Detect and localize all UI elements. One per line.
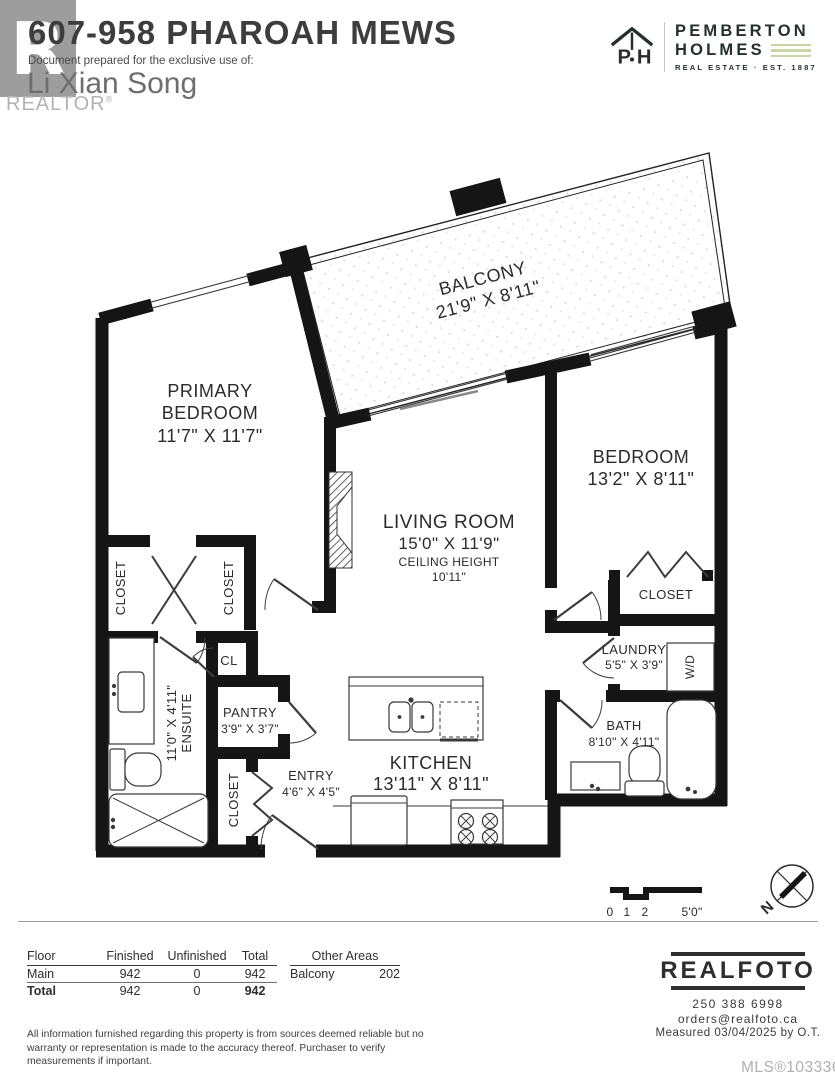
mls-number: MLS®1033367 bbox=[741, 1059, 835, 1077]
col-floor: Floor bbox=[27, 949, 99, 963]
svg-text:LAUNDRY: LAUNDRY bbox=[602, 642, 667, 657]
room-label-ensuite: 11'0" X 4'11" ENSUITE bbox=[164, 685, 194, 762]
floor-plan-page: R 607-958 PHAROAH MEWS Document prepared… bbox=[0, 0, 835, 1080]
room-label-living-room: LIVING ROOM 15'0" X 11'9" CEILING HEIGHT… bbox=[383, 512, 515, 584]
svg-text:PANTRY: PANTRY bbox=[223, 705, 277, 720]
brand-name-line2: HOLMES bbox=[675, 41, 765, 60]
other-areas-header: Other Areas bbox=[290, 948, 400, 966]
compass-icon: N bbox=[758, 865, 813, 918]
wd-label: W/D bbox=[683, 655, 697, 679]
room-label-pantry: PANTRY 3'9" X 3'7" bbox=[221, 705, 279, 736]
svg-text:15'0" X 11'9": 15'0" X 11'9" bbox=[398, 534, 499, 553]
col-total: Total bbox=[233, 949, 277, 963]
realtor-wordmark: REALTOR® bbox=[6, 93, 113, 116]
svg-text:PRIMARY: PRIMARY bbox=[167, 381, 252, 401]
svg-text:5'5" X 3'9": 5'5" X 3'9" bbox=[605, 658, 663, 672]
other-areas-table: Other Areas Balcony 202 bbox=[290, 948, 400, 982]
svg-text:H: H bbox=[637, 46, 652, 68]
other-areas-row: Balcony 202 bbox=[290, 966, 400, 983]
svg-text:P: P bbox=[618, 46, 632, 68]
svg-text:ENTRY: ENTRY bbox=[288, 768, 334, 783]
brand-accent-lines bbox=[771, 44, 811, 58]
page-title: 607-958 PHAROAH MEWS bbox=[28, 14, 457, 52]
col-finished: Finished bbox=[99, 949, 161, 963]
svg-text:ENSUITE: ENSUITE bbox=[179, 693, 194, 752]
tagline-dot: • bbox=[754, 63, 759, 72]
room-label-kitchen: KITCHEN 13'11" X 8'11" bbox=[373, 753, 489, 794]
table-row-main: Main 942 0 942 bbox=[27, 966, 277, 984]
room-label-entry: ENTRY 4'6" X 4'5" bbox=[282, 768, 340, 799]
north-label: N bbox=[758, 898, 777, 918]
svg-text:0: 0 bbox=[607, 905, 614, 919]
svg-text:8'10" X 4'11": 8'10" X 4'11" bbox=[589, 735, 660, 749]
room-label-primary-bedroom: PRIMARY BEDROOM 11'7" X 11'7" bbox=[157, 381, 263, 446]
closet-label-entry: CLOSET bbox=[226, 773, 241, 827]
prepared-for-label: Document prepared for the exclusive use … bbox=[28, 55, 254, 67]
realfoto-email: orders@realfoto.ca bbox=[655, 1012, 821, 1026]
disclaimer-text: All information furnished regarding this… bbox=[27, 1028, 435, 1069]
svg-text:4'6" X 4'5": 4'6" X 4'5" bbox=[282, 785, 340, 799]
brand-tagline: REAL ESTATE • EST. 1887 bbox=[675, 63, 817, 72]
realfoto-block: REALFOTO 250 388 6998 orders@realfoto.ca… bbox=[655, 952, 821, 1039]
svg-text:5'0": 5'0" bbox=[681, 905, 702, 919]
fireplace-icon bbox=[329, 472, 352, 568]
scale-bar: 0 1 2 5'0" bbox=[607, 890, 703, 919]
svg-text:3'9" X 3'7": 3'9" X 3'7" bbox=[221, 722, 279, 736]
svg-text:LIVING ROOM: LIVING ROOM bbox=[383, 512, 515, 533]
svg-text:1: 1 bbox=[624, 905, 631, 919]
svg-text:11'0" X 4'11": 11'0" X 4'11" bbox=[164, 685, 179, 762]
room-label-bath: BATH 8'10" X 4'11" bbox=[589, 718, 660, 749]
closet-label-1: CLOSET bbox=[113, 561, 128, 615]
realfoto-bar-top bbox=[671, 952, 805, 956]
room-label-bedroom: BEDROOM 13'2" X 8'11" bbox=[588, 447, 695, 489]
floor-plan-drawing: BALCONY 21'9" X 8'11" PRIMARY BEDROOM 11… bbox=[0, 0, 835, 1080]
svg-text:KITCHEN: KITCHEN bbox=[390, 753, 473, 773]
realfoto-logo: REALFOTO bbox=[655, 957, 821, 986]
svg-text:BEDROOM: BEDROOM bbox=[593, 447, 690, 467]
col-unfinished: Unfinished bbox=[161, 949, 233, 963]
brand-name-line1: PEMBERTON bbox=[675, 22, 817, 41]
svg-text:2: 2 bbox=[642, 905, 649, 919]
svg-text:BEDROOM: BEDROOM bbox=[162, 403, 259, 423]
realfoto-phone: 250 388 6998 bbox=[655, 997, 821, 1011]
svg-text:10'11": 10'11" bbox=[432, 570, 466, 584]
room-label-laundry: LAUNDRY 5'5" X 3'9" bbox=[602, 642, 667, 672]
pemberton-holmes-logo: P H PEMBERTON HOLMES REAL ESTATE • EST. … bbox=[606, 16, 821, 78]
table-row-total: Total 942 0 942 bbox=[27, 983, 277, 1000]
closet-label-bedroom: CLOSET bbox=[639, 587, 693, 602]
svg-text:CEILING HEIGHT: CEILING HEIGHT bbox=[399, 555, 500, 569]
footer-divider bbox=[18, 921, 818, 922]
closet-label-2: CLOSET bbox=[221, 561, 236, 615]
area-table: Floor Finished Unfinished Total Main 942… bbox=[27, 948, 277, 1000]
closet-jamb-left bbox=[609, 570, 620, 581]
svg-text:13'2" X 8'11": 13'2" X 8'11" bbox=[588, 469, 695, 489]
logo-divider bbox=[664, 22, 665, 72]
svg-text:11'7" X 11'7": 11'7" X 11'7" bbox=[157, 426, 263, 446]
svg-text:13'11" X 8'11": 13'11" X 8'11" bbox=[373, 774, 489, 794]
svg-text:BATH: BATH bbox=[606, 718, 641, 733]
realfoto-bar-bottom bbox=[671, 986, 805, 990]
cl-label: CL bbox=[220, 653, 237, 668]
measured-line: Measured 03/04/2025 by O.T. bbox=[655, 1027, 821, 1039]
house-icon: P H bbox=[606, 21, 658, 73]
